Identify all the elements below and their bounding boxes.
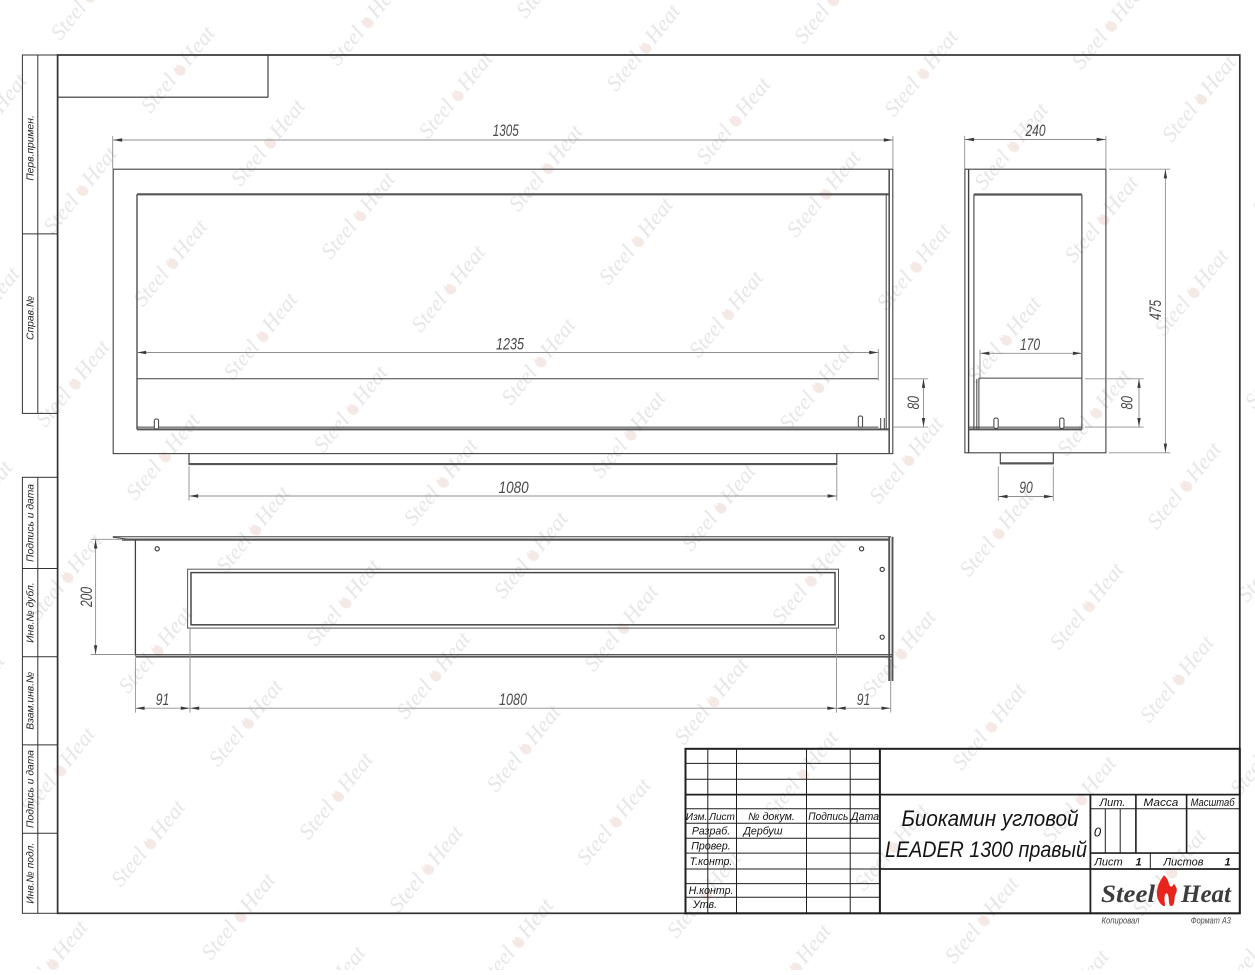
svg-text:LEADER 1300 правый: LEADER 1300 правый (885, 837, 1087, 862)
svg-text:1: 1 (1224, 856, 1230, 868)
svg-text:1235: 1235 (496, 335, 525, 353)
svg-text:Перв.примен.: Перв.примен. (26, 115, 37, 181)
svg-text:Копировал: Копировал (1102, 916, 1140, 926)
svg-text:200: 200 (78, 587, 96, 608)
svg-text:Справ.№: Справ.№ (26, 296, 37, 340)
svg-text:Подпись и дата: Подпись и дата (26, 750, 37, 828)
svg-text:Лит.: Лит. (1099, 797, 1126, 809)
svg-text:Дербуш: Дербуш (742, 826, 782, 838)
svg-text:80: 80 (905, 396, 923, 410)
svg-text:Масса: Масса (1143, 797, 1178, 809)
svg-text:Изм.: Изм. (686, 812, 707, 823)
svg-text:90: 90 (1019, 479, 1033, 497)
svg-text:Утв.: Утв. (692, 899, 717, 911)
svg-text:Н.контр.: Н.контр. (689, 885, 734, 897)
svg-text:Лист: Лист (1093, 856, 1122, 868)
svg-text:Инв.№ подл.: Инв.№ подл. (26, 843, 37, 904)
svg-text:Подпись: Подпись (808, 811, 848, 823)
svg-text:Лист: Лист (708, 812, 735, 823)
svg-text:Инв.№ дубл.: Инв.№ дубл. (25, 582, 37, 642)
svg-text:Т.контр.: Т.контр. (690, 856, 733, 868)
svg-text:Формат А3: Формат А3 (1191, 916, 1232, 926)
svg-text:0: 0 (1094, 825, 1102, 840)
svg-text:240: 240 (1025, 122, 1046, 140)
svg-text:Провер.: Провер. (691, 841, 730, 853)
svg-text:170: 170 (1020, 336, 1040, 354)
svg-text:91: 91 (857, 691, 871, 709)
svg-text:1080: 1080 (499, 691, 527, 709)
svg-text:1305: 1305 (493, 122, 520, 140)
svg-text:Разраб.: Разраб. (692, 826, 730, 838)
svg-text:Heat: Heat (1180, 881, 1232, 908)
svg-text:Steel: Steel (1101, 881, 1155, 908)
svg-text:Листов: Листов (1162, 856, 1203, 868)
svg-text:1080: 1080 (499, 479, 529, 497)
svg-text:Биокамин угловой: Биокамин угловой (902, 806, 1079, 831)
svg-text:80: 80 (1118, 396, 1136, 410)
svg-text:Дата: Дата (850, 811, 879, 823)
svg-text:1: 1 (1135, 856, 1141, 868)
svg-text:Масштаб: Масштаб (1191, 797, 1236, 809)
svg-text:475: 475 (1147, 299, 1165, 320)
svg-text:91: 91 (156, 691, 170, 709)
svg-text:Взам.инв.№: Взам.инв.№ (26, 672, 37, 730)
svg-text:№ докум.: № докум. (748, 811, 795, 823)
svg-text:Подпись и дата: Подпись и дата (26, 484, 37, 562)
